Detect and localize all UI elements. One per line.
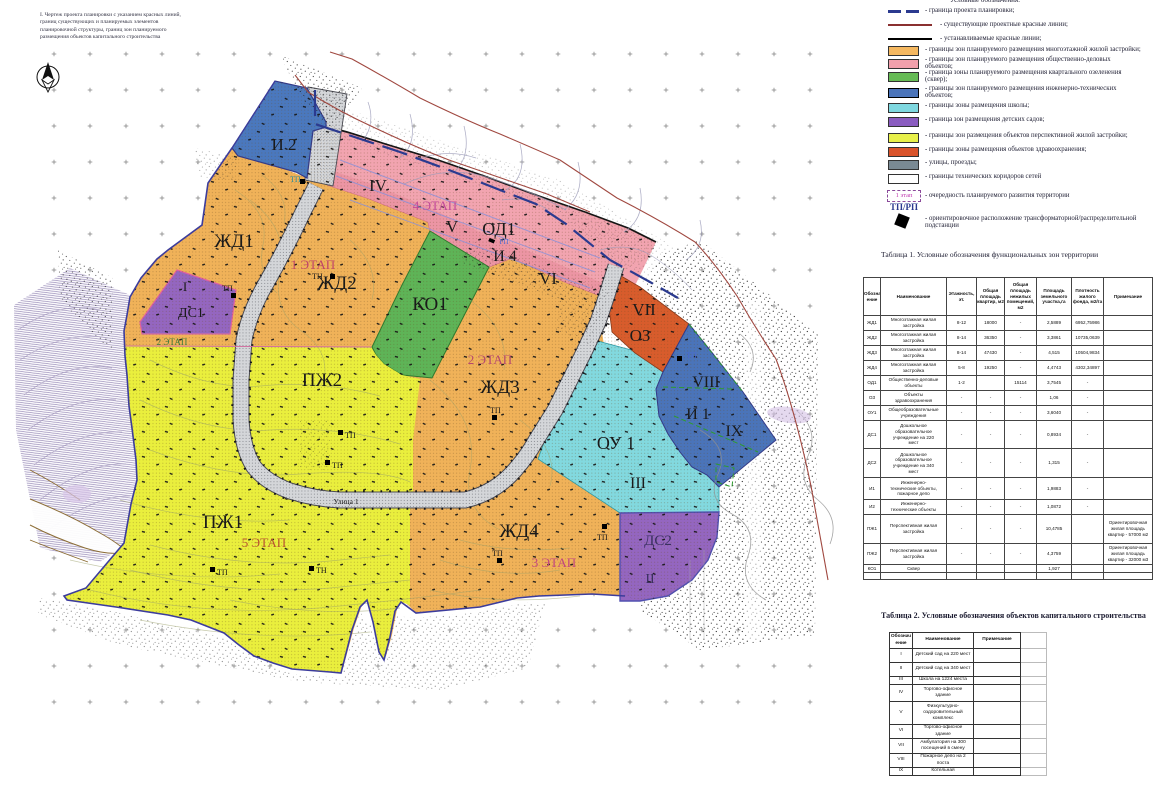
svg-text:ТП: ТП [597,533,608,542]
svg-text:2 ЭТАП: 2 ЭТАП [468,352,512,367]
svg-text:III: III [630,475,646,492]
svg-text:3 ЭТАП: 3 ЭТАП [532,555,576,570]
svg-text:И 4: И 4 [493,248,517,265]
svg-text:ТП: ТП [217,568,228,577]
svg-text:ДС2: ДС2 [644,533,672,549]
svg-text:ЖД1: ЖД1 [214,231,253,252]
svg-text:И 1: И 1 [686,406,710,423]
svg-text:I: I [183,279,187,294]
svg-text:ЖД3: ЖД3 [480,377,519,398]
svg-text:ТП: ТП [290,175,301,184]
svg-text:ЖД4: ЖД4 [499,521,539,542]
svg-text:IX: IX [726,423,743,440]
svg-text:V: V [446,217,459,236]
svg-text:ПЖ2: ПЖ2 [302,370,342,391]
svg-text:VII: VII [632,300,656,319]
svg-text:IV: IV [369,176,388,195]
svg-text:4 ЭТАП: 4 ЭТАП [413,198,457,213]
svg-text:ДС1: ДС1 [178,306,204,321]
svg-text:КО1: КО1 [412,294,447,315]
svg-text:ТП: ТП [686,351,697,360]
svg-text:ОД1: ОД1 [482,219,515,239]
svg-text:ТН: ТН [316,566,327,575]
svg-text:VI: VI [539,269,557,288]
svg-text:2 ЭТАП: 2 ЭТАП [157,337,188,347]
svg-text:И 2: И 2 [271,135,296,154]
svg-text:ТП: ТП [490,406,501,415]
svg-text:ТП: ТП [332,461,343,470]
svg-text:ТП: ТП [492,549,503,558]
svg-text:ПЖ1: ПЖ1 [203,512,243,533]
svg-text:II: II [645,572,655,587]
svg-text:Улица 1: Улица 1 [333,497,358,506]
svg-text:VIII: VIII [692,374,720,391]
svg-text:ТН: ТН [312,272,323,281]
svg-text:ОЗ: ОЗ [630,326,651,345]
svg-text:ТП: ТП [345,431,356,440]
svg-text:ОУ 1: ОУ 1 [597,433,635,453]
svg-text:РП: РП [500,238,509,246]
svg-text:ЖД2: ЖД2 [317,273,356,294]
svg-text:ТП: ТП [222,284,233,293]
svg-text:1 ЭТАП: 1 ЭТАП [291,257,335,272]
svg-text:5 ЭТАП: 5 ЭТАП [242,535,286,550]
